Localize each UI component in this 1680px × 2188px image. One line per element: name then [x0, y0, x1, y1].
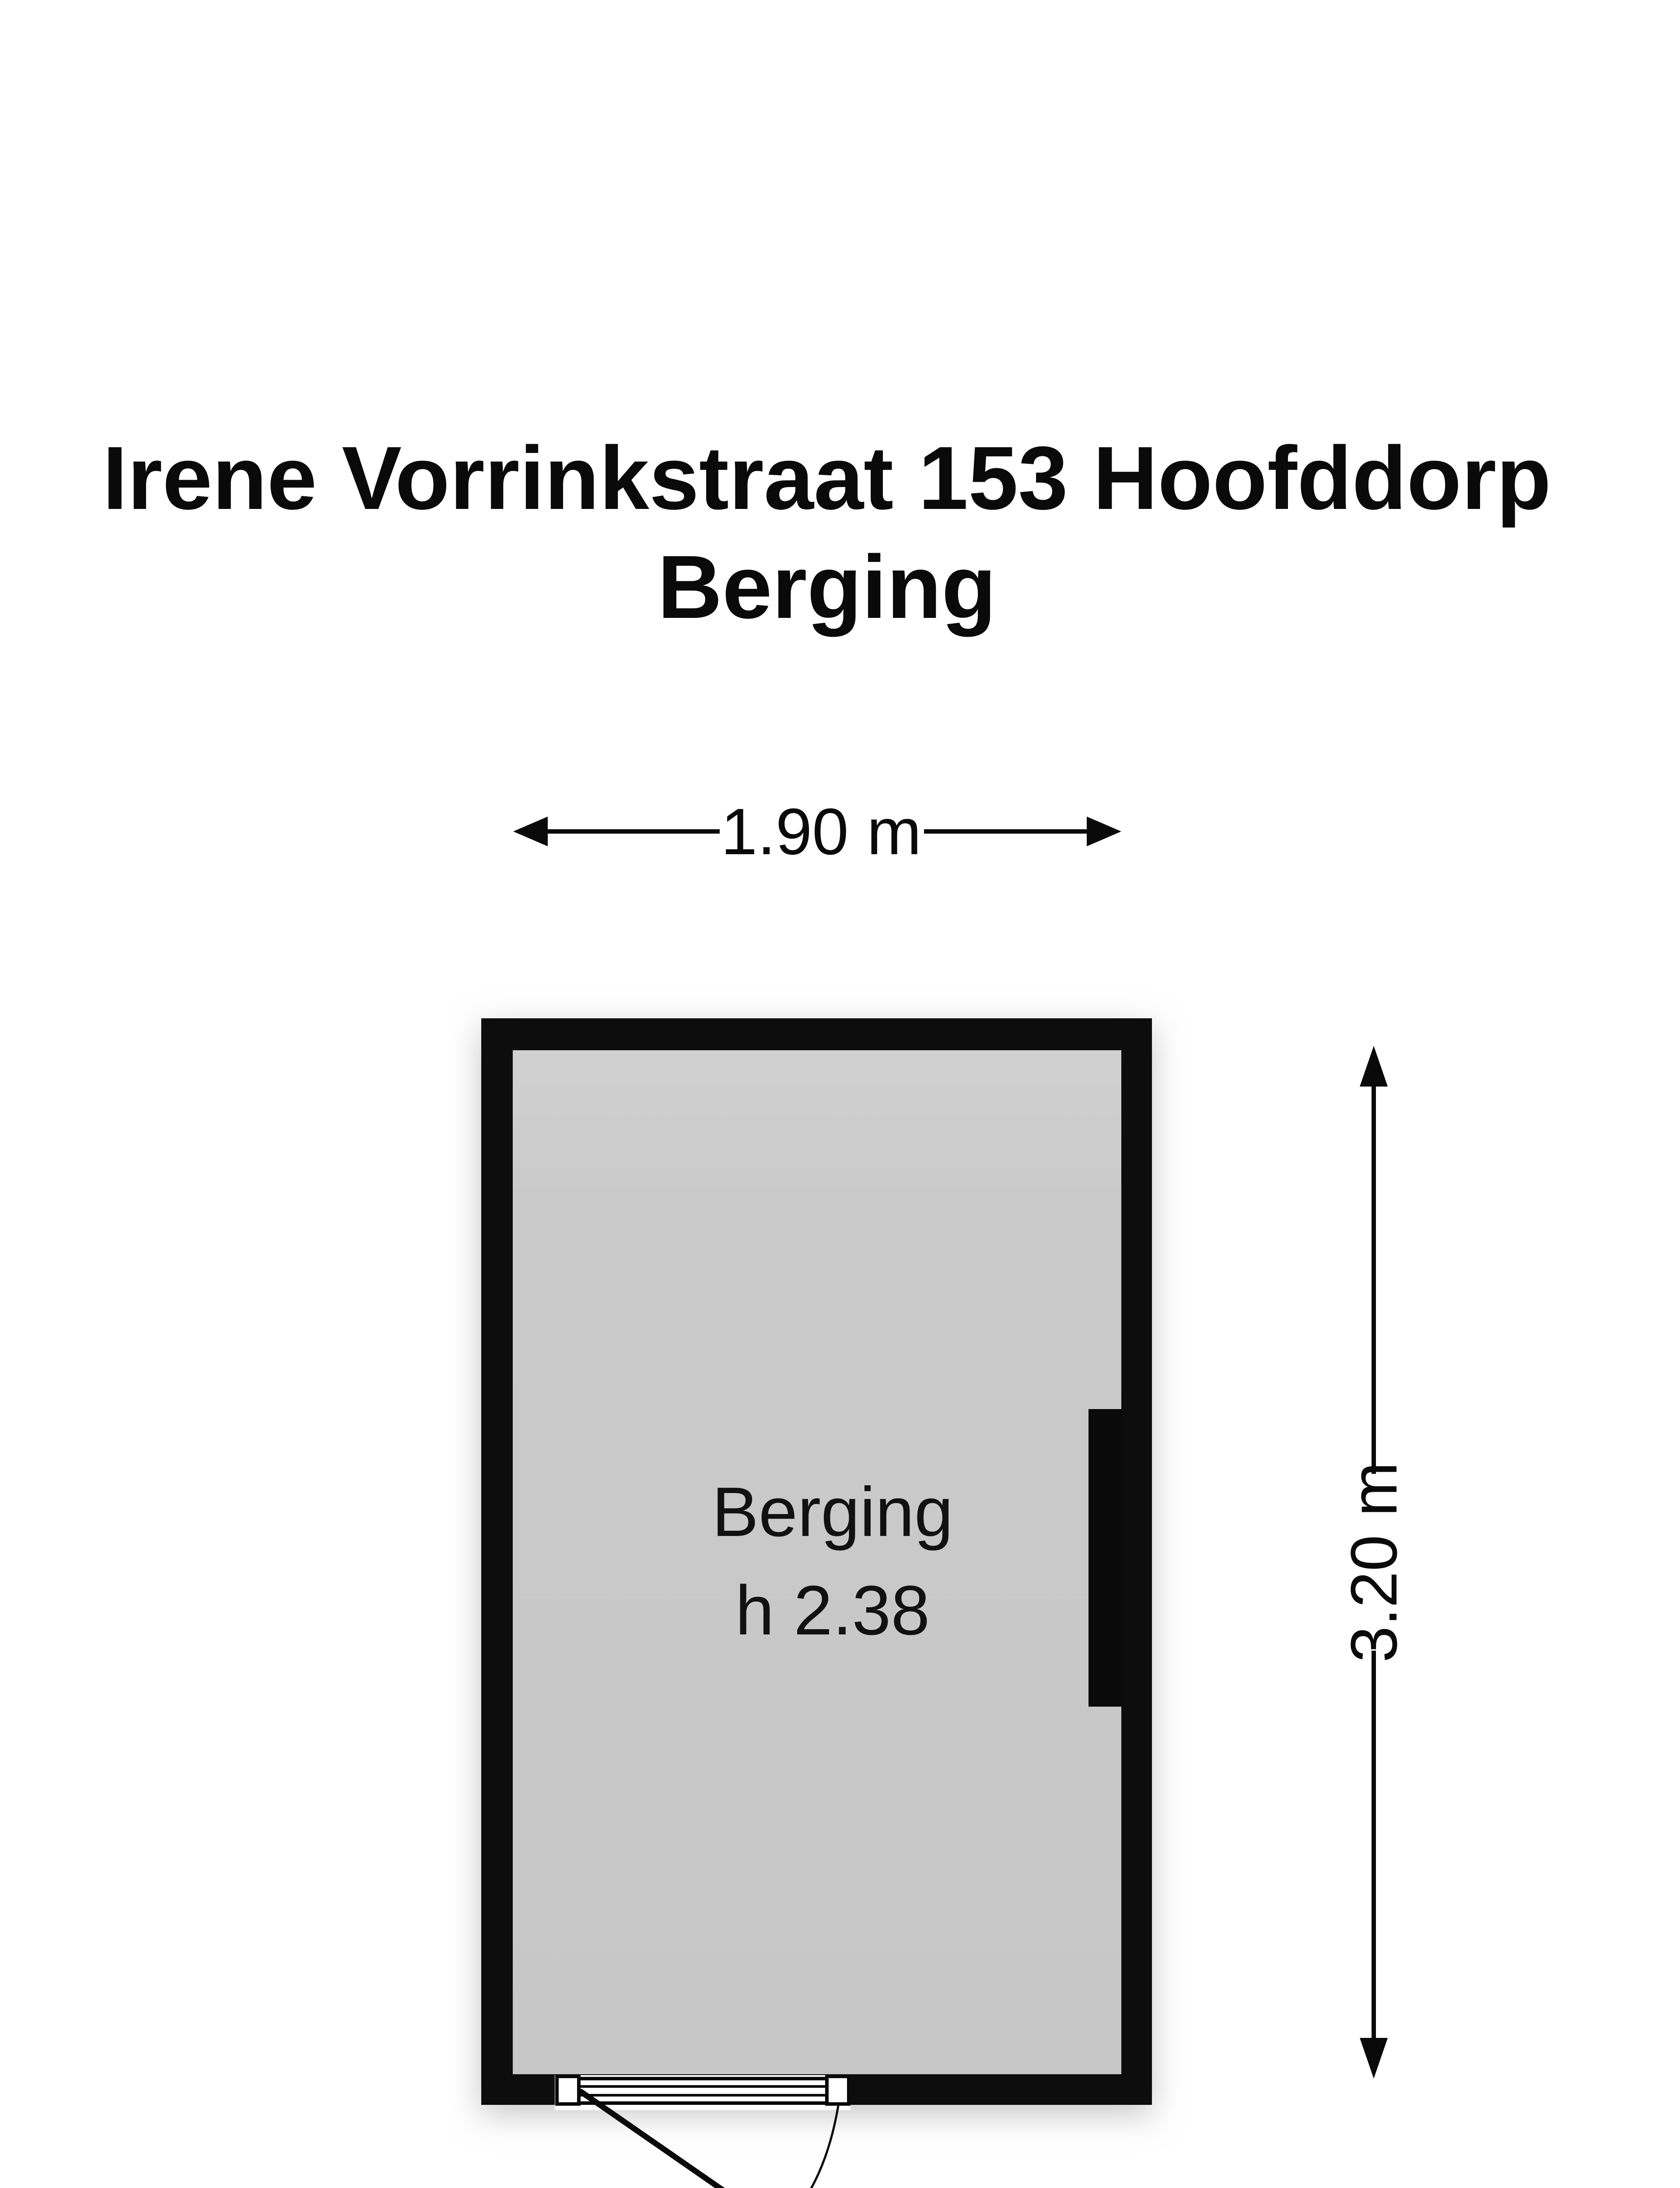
wall-column [1088, 1409, 1123, 1707]
page-title-line2: Berging [658, 537, 996, 637]
room-height-label: h 2.38 [735, 1571, 930, 1649]
floor-plan-canvas: Irene Vorrinkstraat 153 Hoofddorp Bergin… [0, 0, 1680, 2188]
room: Berging h 2.38 [481, 1018, 1152, 2188]
height-dimension-label: 3.20 m [1337, 1462, 1410, 1663]
door-jamb-right [827, 2076, 849, 2104]
room-floor [513, 1050, 1121, 2074]
threshold-frame [577, 2079, 828, 2103]
room-name-label: Berging [712, 1473, 953, 1551]
page: Irene Vorrinkstraat 153 Hoofddorp Bergin… [0, 0, 1680, 2188]
page-title-line1: Irene Vorrinkstraat 153 Hoofddorp [102, 428, 1551, 528]
door-jamb-left [557, 2076, 579, 2104]
width-dimension-label: 1.90 m [721, 795, 922, 868]
door-threshold [577, 2079, 828, 2103]
